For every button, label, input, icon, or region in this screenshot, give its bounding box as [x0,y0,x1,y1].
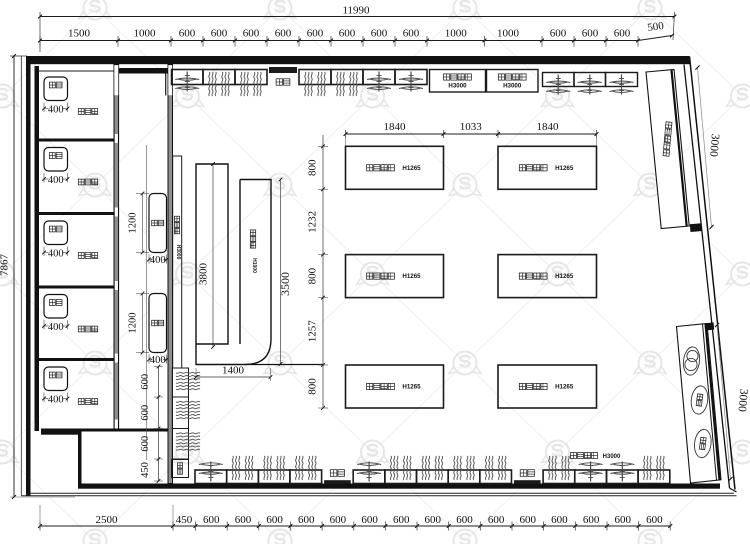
svg-text:600: 600 [179,28,196,40]
svg-text:600: 600 [425,514,442,526]
svg-text:600: 600 [371,28,388,40]
svg-text:1840: 1840 [384,121,407,133]
svg-text:1840: 1840 [537,121,560,133]
svg-text:600: 600 [615,514,632,526]
svg-text:450: 450 [140,462,151,478]
svg-text:600: 600 [243,28,260,40]
svg-text:600: 600 [266,514,283,526]
svg-text:1000: 1000 [134,28,157,40]
svg-text:H1265: H1265 [555,165,574,172]
svg-text:600: 600 [298,514,315,526]
svg-text:7867: 7867 [0,254,11,277]
svg-text:600: 600 [275,28,292,40]
svg-text:1200: 1200 [128,213,139,234]
svg-text:600: 600 [583,514,600,526]
svg-text:600: 600 [330,514,347,526]
svg-text:600: 600 [211,28,228,40]
svg-text:H1265: H1265 [402,165,421,172]
svg-text:600: 600 [403,28,420,40]
svg-text:1500: 1500 [68,28,91,40]
svg-text:400: 400 [48,395,64,406]
svg-text:H3000: H3000 [448,83,467,90]
svg-text:400: 400 [48,105,64,116]
svg-text:400: 400 [48,249,64,260]
svg-text:600: 600 [393,514,410,526]
svg-text:800: 800 [307,267,319,284]
svg-text:600: 600 [520,514,537,526]
svg-text:3000: 3000 [707,133,721,157]
svg-text:600: 600 [235,514,252,526]
svg-text:600: 600 [307,28,324,40]
svg-text:800: 800 [307,159,319,176]
svg-text:H3000: H3000 [503,83,522,90]
svg-text:600: 600 [614,28,631,40]
svg-text:600: 600 [361,514,378,526]
svg-text:600: 600 [646,514,663,526]
svg-text:400: 400 [150,255,166,266]
svg-text:400: 400 [48,322,64,333]
svg-text:3000: 3000 [735,388,749,412]
svg-text:H1000: H1000 [251,258,257,273]
svg-text:1000: 1000 [497,28,520,40]
svg-text:H1265: H1265 [555,384,574,391]
svg-text:600: 600 [140,436,151,452]
svg-text:1033: 1033 [460,121,483,133]
svg-text:1232: 1232 [307,211,319,233]
svg-text:600: 600 [550,28,567,40]
svg-text:1400: 1400 [222,365,245,377]
svg-text:400: 400 [150,355,166,366]
svg-text:3500: 3500 [278,272,292,296]
svg-text:600: 600 [582,28,599,40]
svg-text:500: 500 [647,20,666,34]
svg-text:1000: 1000 [445,28,468,40]
svg-text:600: 600 [551,514,568,526]
svg-text:600: 600 [488,514,505,526]
svg-text:H1265: H1265 [555,273,574,280]
svg-text:800: 800 [307,378,319,395]
svg-text:H3000: H3000 [603,454,621,460]
svg-text:600: 600 [140,374,151,390]
svg-text:H3000: H3000 [175,245,181,260]
svg-text:11990: 11990 [342,5,370,17]
svg-text:600: 600 [203,514,220,526]
svg-text:H1265: H1265 [402,273,421,280]
svg-text:1257: 1257 [307,320,319,343]
svg-text:600: 600 [339,28,356,40]
svg-text:3800: 3800 [198,263,210,286]
svg-text:600: 600 [456,514,473,526]
svg-text:1200: 1200 [128,313,139,334]
svg-text:600: 600 [140,405,151,421]
svg-text:400: 400 [48,175,64,186]
svg-text:2500: 2500 [96,514,119,526]
svg-text:H1265: H1265 [402,384,421,391]
svg-text:450: 450 [176,514,193,526]
